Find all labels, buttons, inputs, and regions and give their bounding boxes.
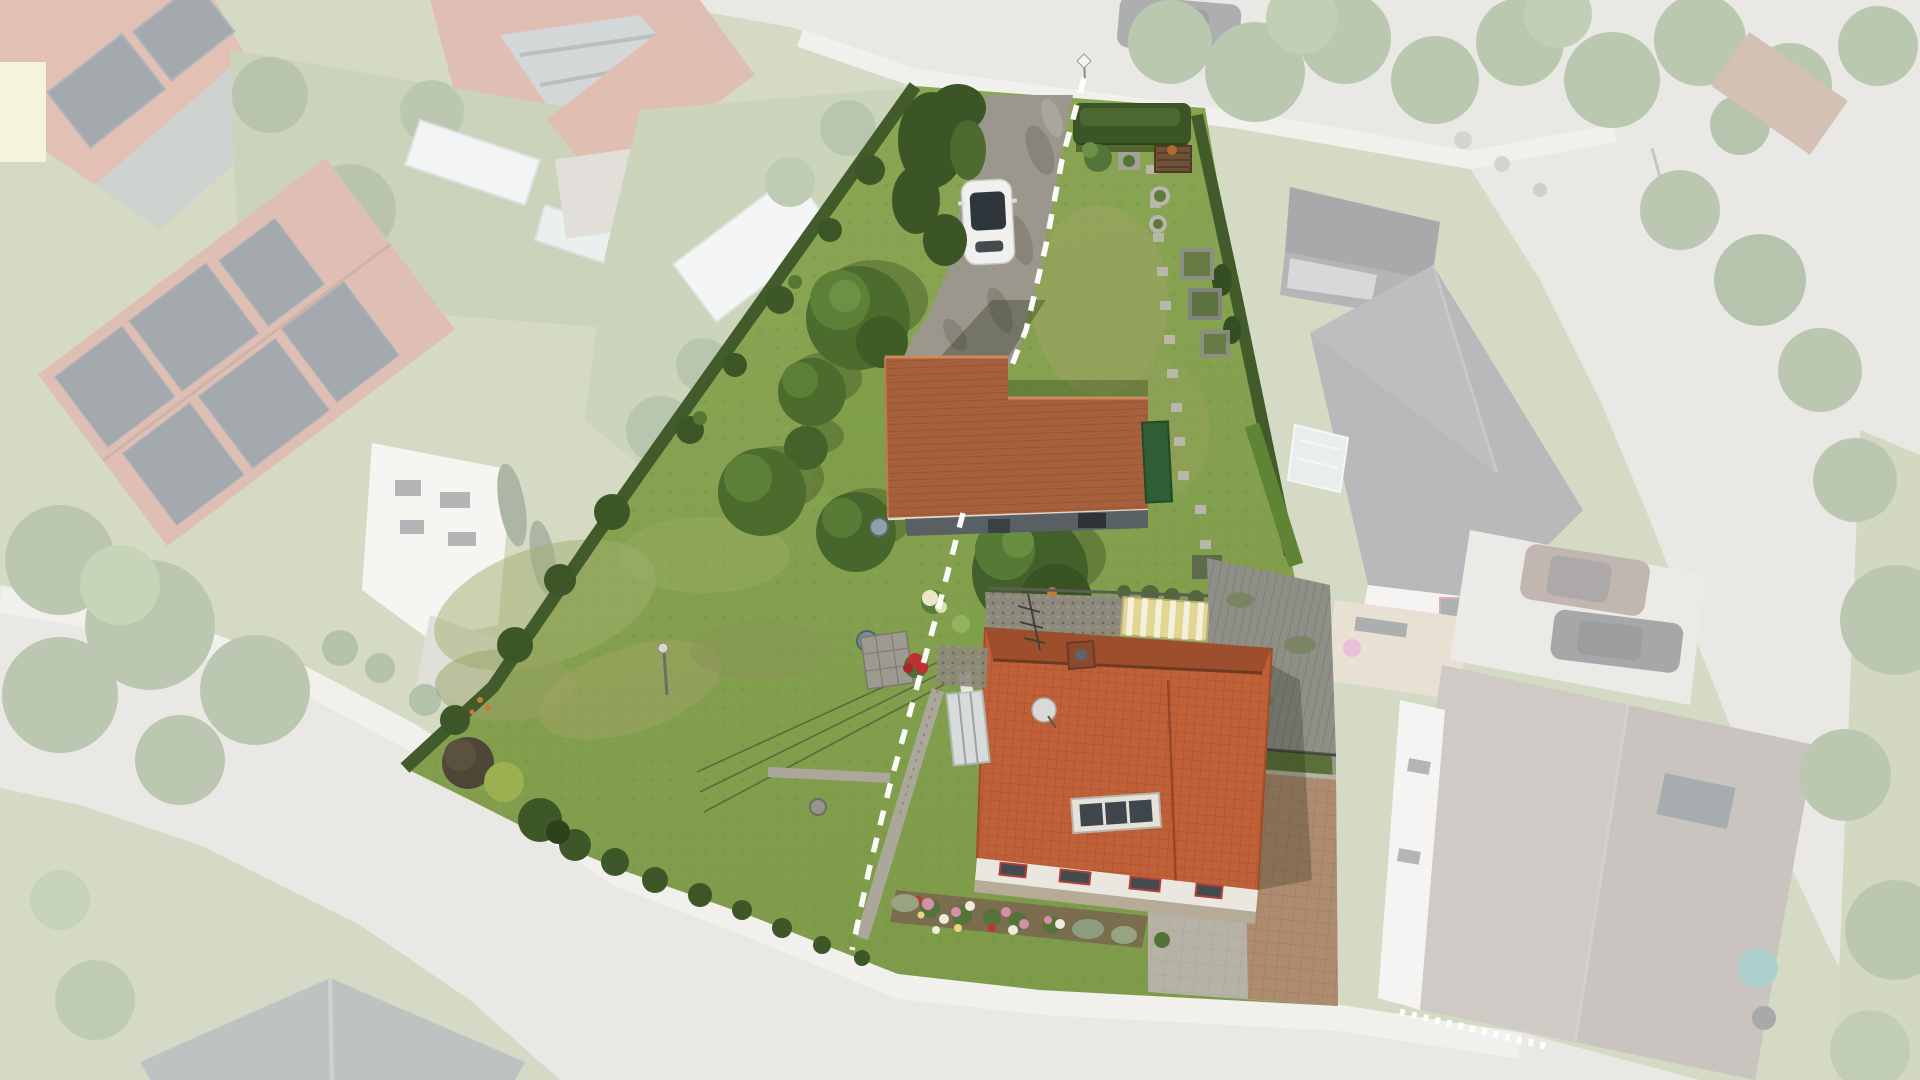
green-tarp — [1142, 421, 1172, 502]
aerial-photo-stage — [0, 0, 1920, 1080]
rain-barrel — [870, 518, 888, 536]
dormer — [1071, 793, 1161, 833]
white-flowers — [922, 590, 938, 606]
lavender-bush — [891, 894, 919, 912]
chimney — [1067, 641, 1095, 669]
white-car — [957, 178, 1020, 265]
lime-bush — [484, 762, 524, 802]
aerial-photo — [0, 0, 1920, 1080]
manhole-in-lawn — [810, 799, 826, 815]
striped-awning — [1121, 597, 1209, 641]
conservatory-leanto — [946, 690, 989, 765]
compost-bins — [1155, 145, 1191, 172]
